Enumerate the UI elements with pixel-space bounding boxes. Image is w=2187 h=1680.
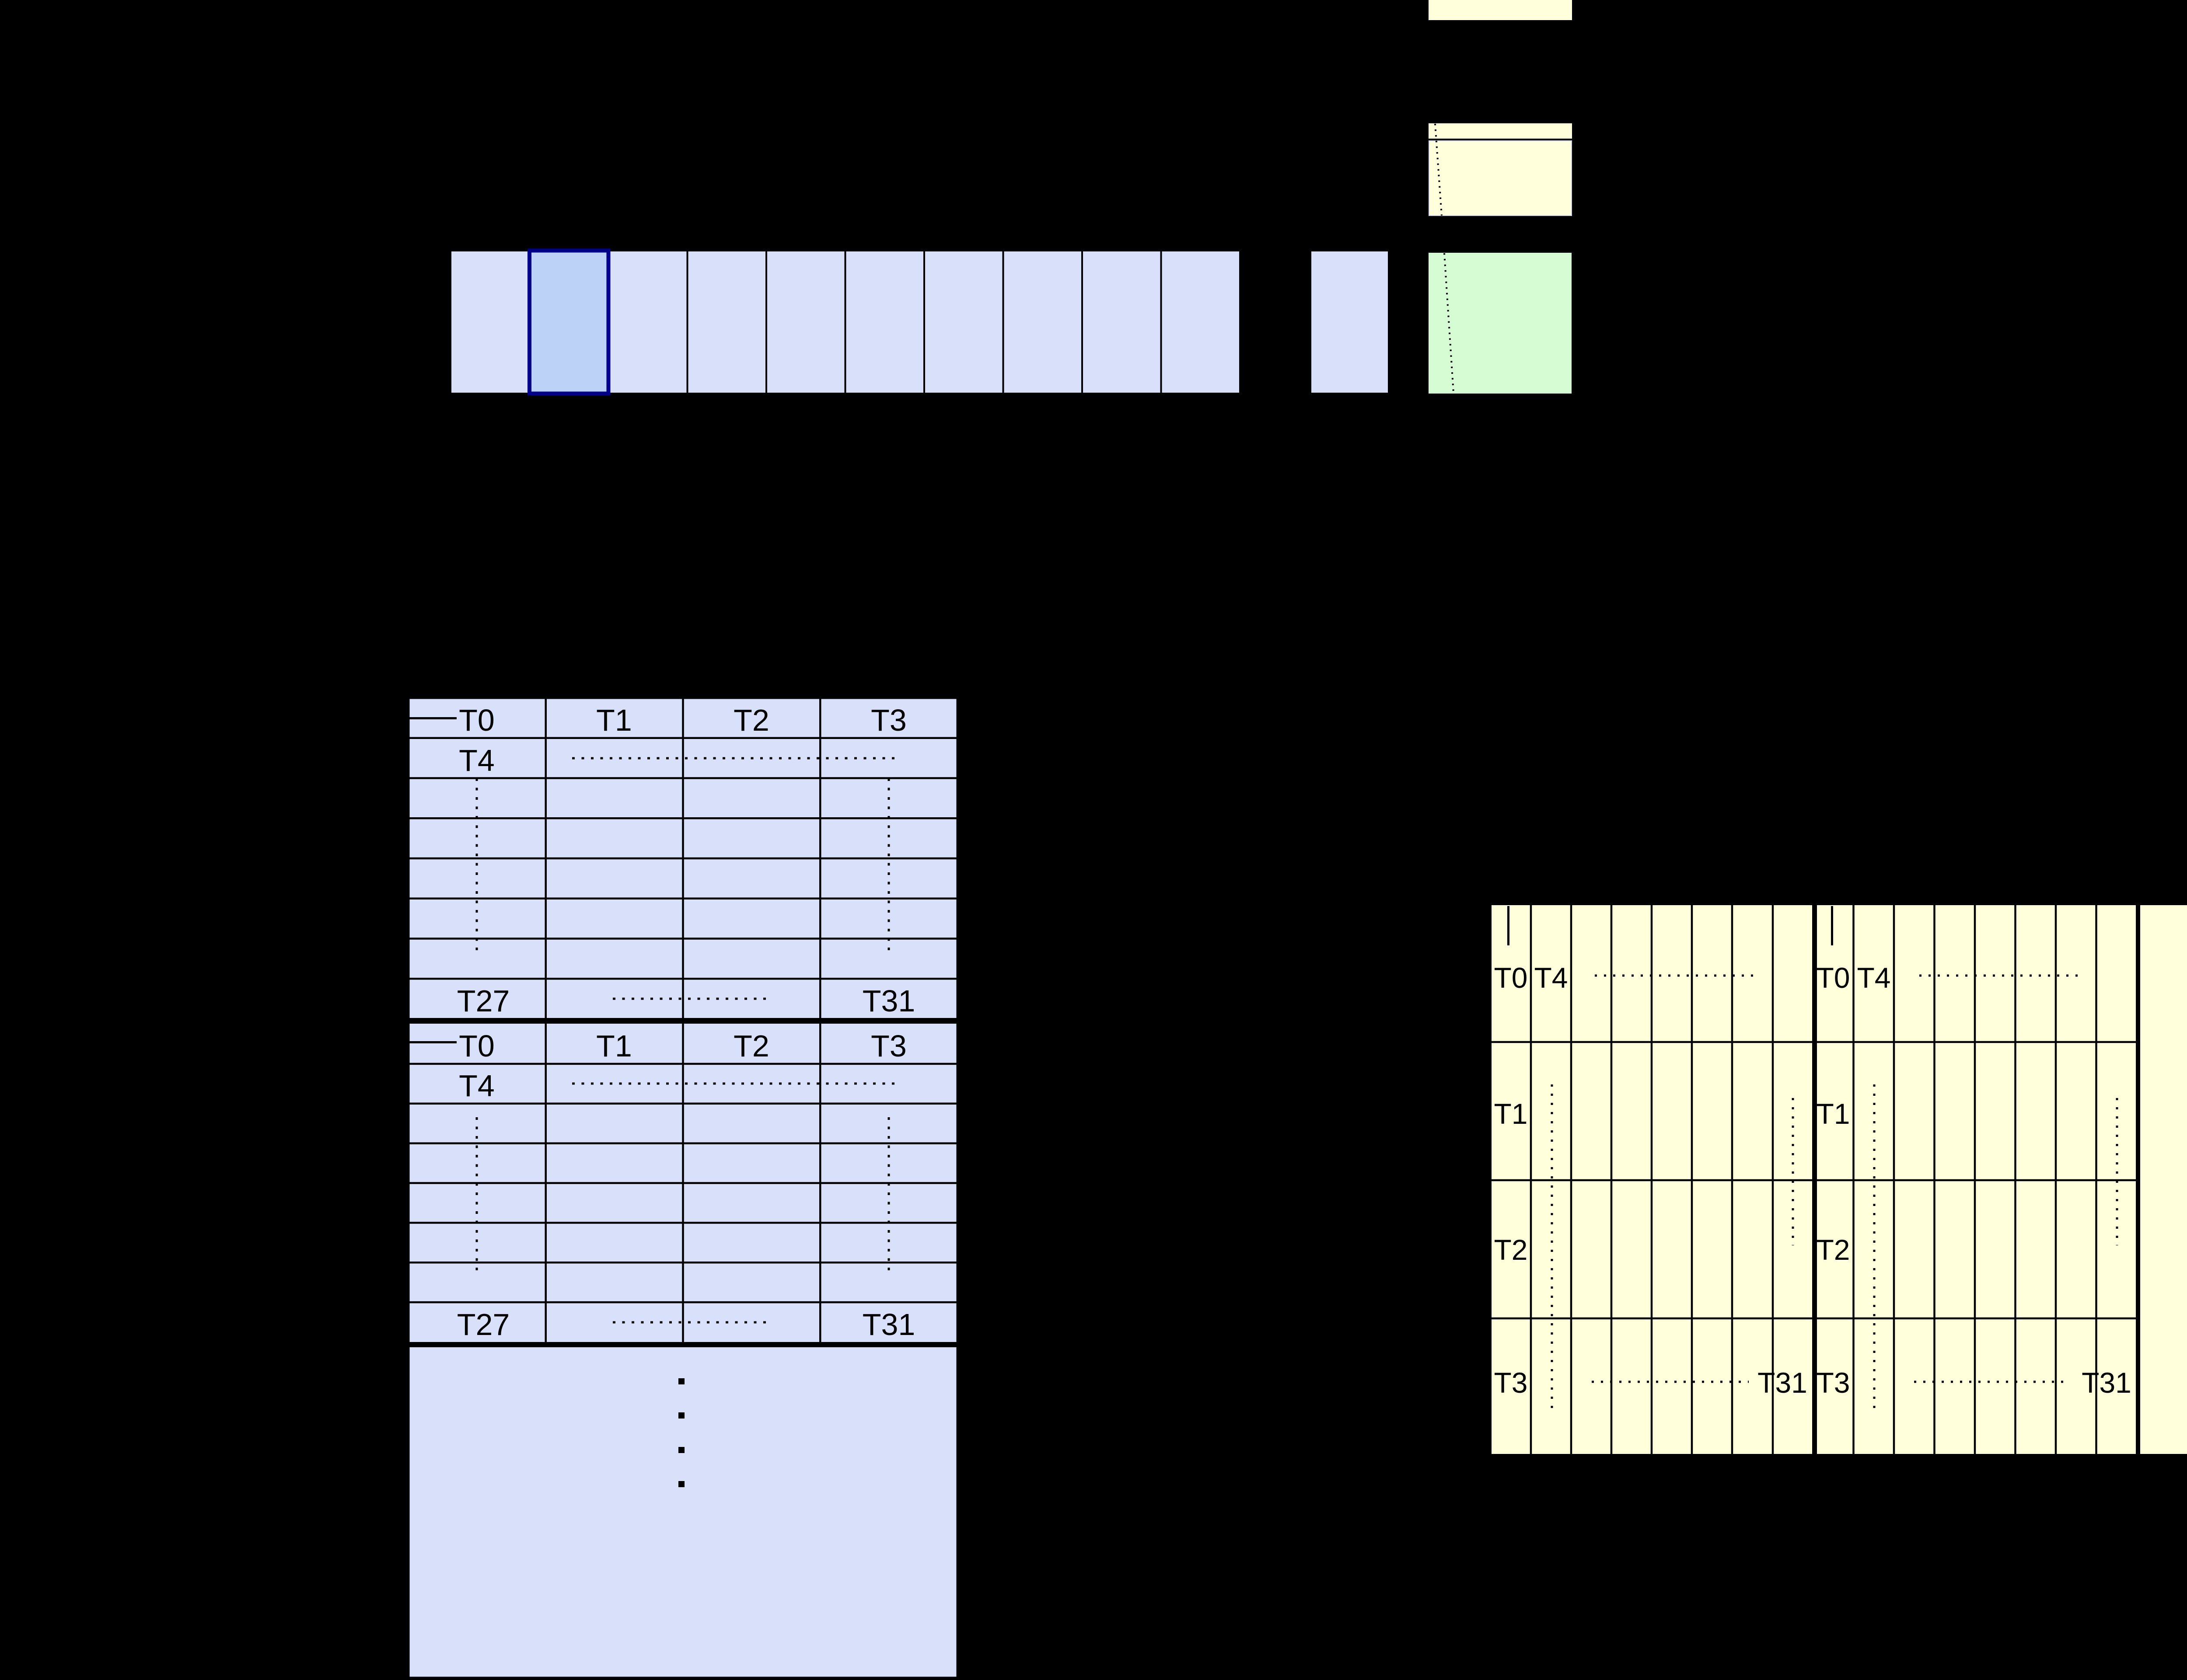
svg-text:T2: T2 <box>734 703 769 737</box>
svg-text:T1: T1 <box>1816 1098 1850 1130</box>
svg-text:T3: T3 <box>871 703 907 737</box>
svg-text:T4: T4 <box>459 1069 495 1103</box>
svg-text:T1: T1 <box>1494 1098 1527 1130</box>
svg-text:T27: T27 <box>457 984 510 1018</box>
svg-text:T31: T31 <box>2082 1366 2131 1399</box>
svg-text:T1: T1 <box>596 703 632 737</box>
svg-text:T4: T4 <box>1857 962 1890 994</box>
svg-text:T3: T3 <box>1494 1366 1527 1399</box>
svg-text:T2: T2 <box>1494 1234 1527 1266</box>
svg-text:T0: T0 <box>459 703 495 737</box>
svg-text:T0: T0 <box>1494 962 1527 994</box>
svg-text:T31: T31 <box>863 1307 915 1342</box>
svg-text:T4: T4 <box>1534 962 1568 994</box>
svg-text:T31: T31 <box>1757 1366 1807 1399</box>
svg-text:T2: T2 <box>1816 1234 1850 1266</box>
svg-text:T27: T27 <box>457 1307 510 1342</box>
svg-text:T2: T2 <box>734 1029 769 1063</box>
svg-text:T4: T4 <box>459 743 495 777</box>
svg-text:T0: T0 <box>1816 962 1850 994</box>
svg-text:T3: T3 <box>1816 1366 1850 1399</box>
svg-text:T31: T31 <box>863 984 915 1018</box>
svg-text:T0: T0 <box>459 1029 495 1063</box>
svg-text:T1: T1 <box>596 1029 632 1063</box>
svg-text:T3: T3 <box>871 1029 907 1063</box>
